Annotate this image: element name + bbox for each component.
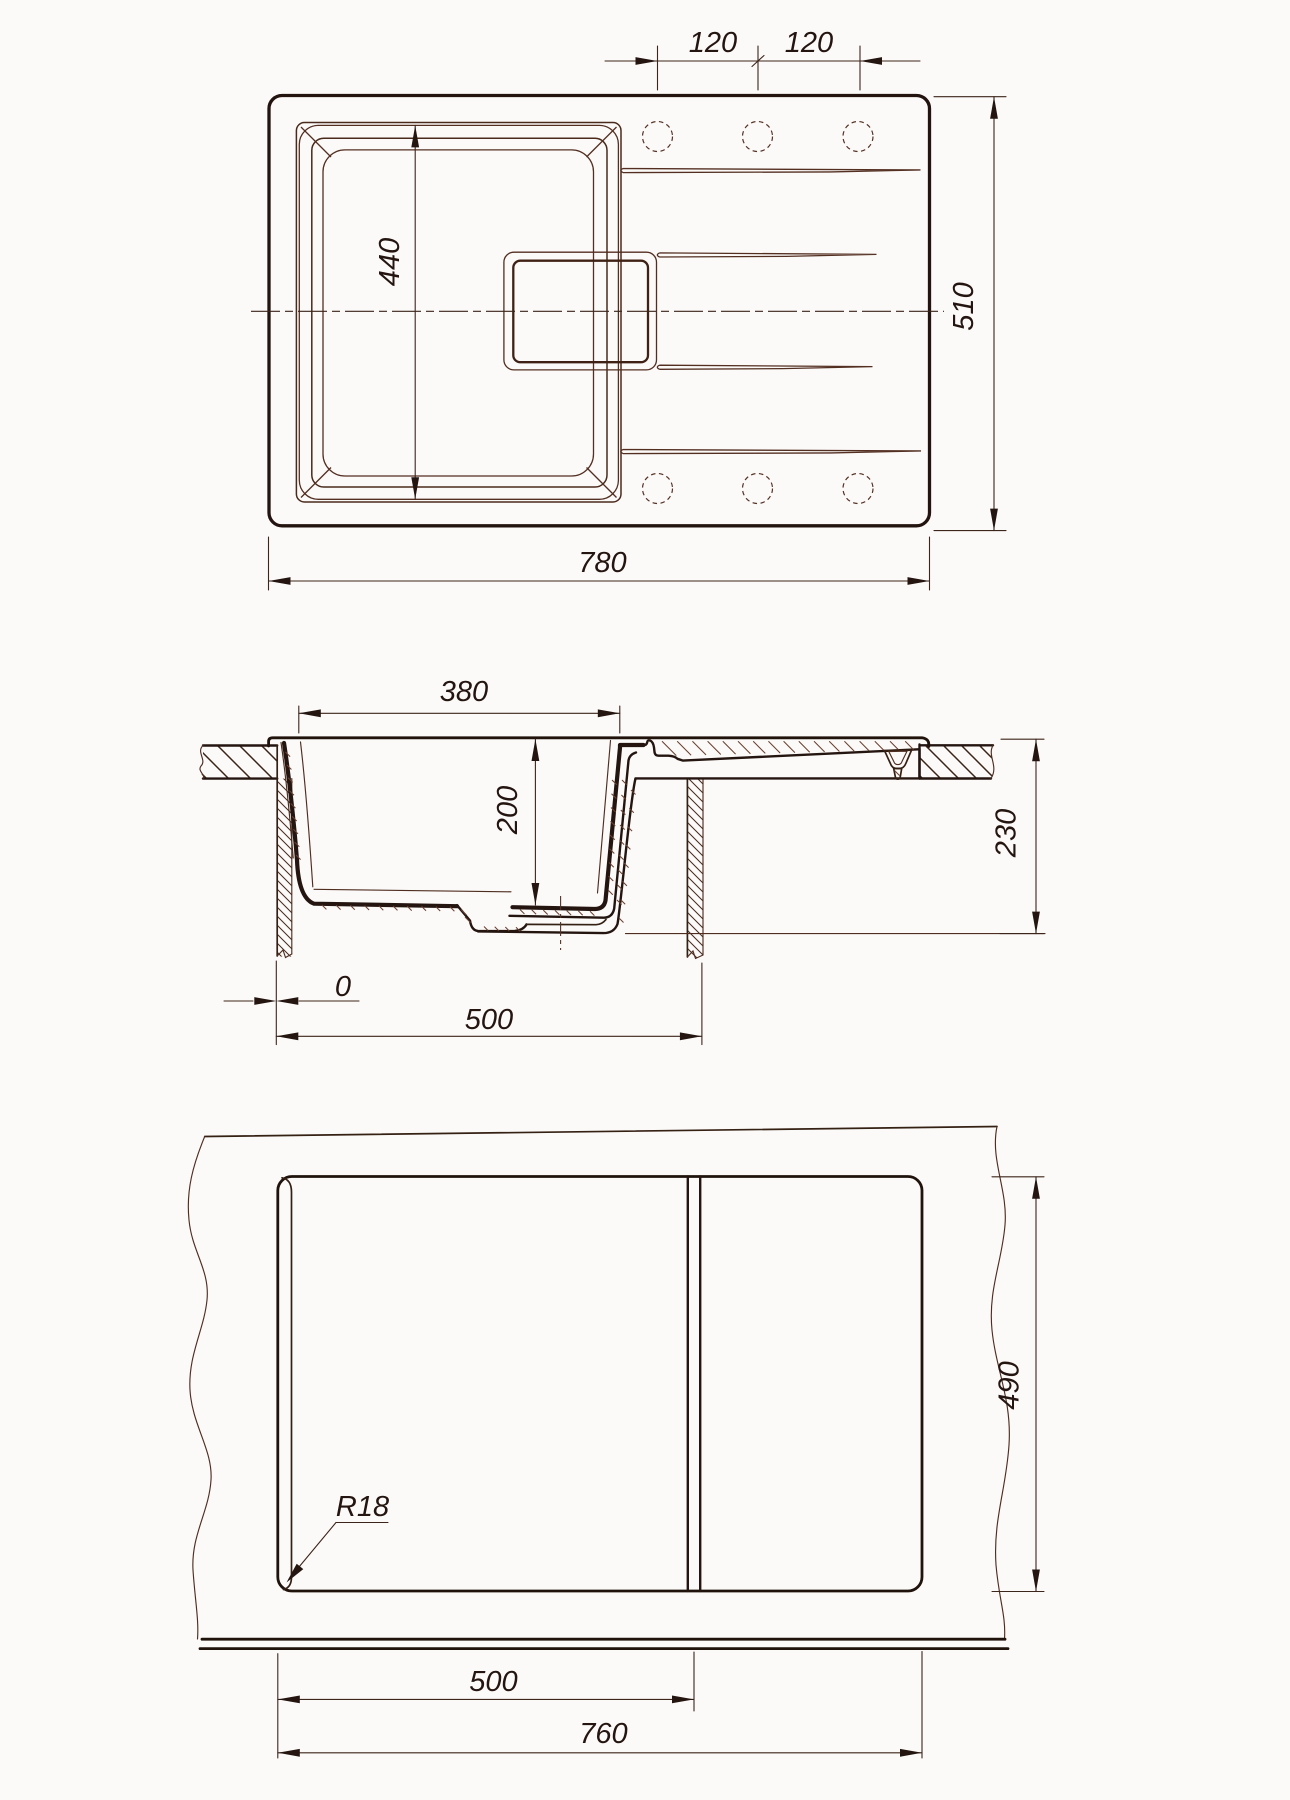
svg-text:510: 510 [948, 282, 980, 330]
svg-text:500: 500 [469, 1666, 517, 1698]
svg-text:0: 0 [335, 971, 351, 1003]
svg-text:500: 500 [465, 1004, 513, 1036]
svg-text:380: 380 [440, 676, 488, 708]
svg-text:120: 120 [785, 27, 833, 59]
svg-text:120: 120 [689, 27, 737, 59]
svg-text:760: 760 [579, 1718, 627, 1750]
svg-text:200: 200 [492, 786, 524, 835]
svg-text:R18: R18 [336, 1491, 389, 1523]
svg-text:440: 440 [374, 238, 406, 286]
svg-text:230: 230 [991, 809, 1023, 858]
svg-text:780: 780 [578, 547, 626, 579]
svg-text:490: 490 [994, 1361, 1026, 1409]
